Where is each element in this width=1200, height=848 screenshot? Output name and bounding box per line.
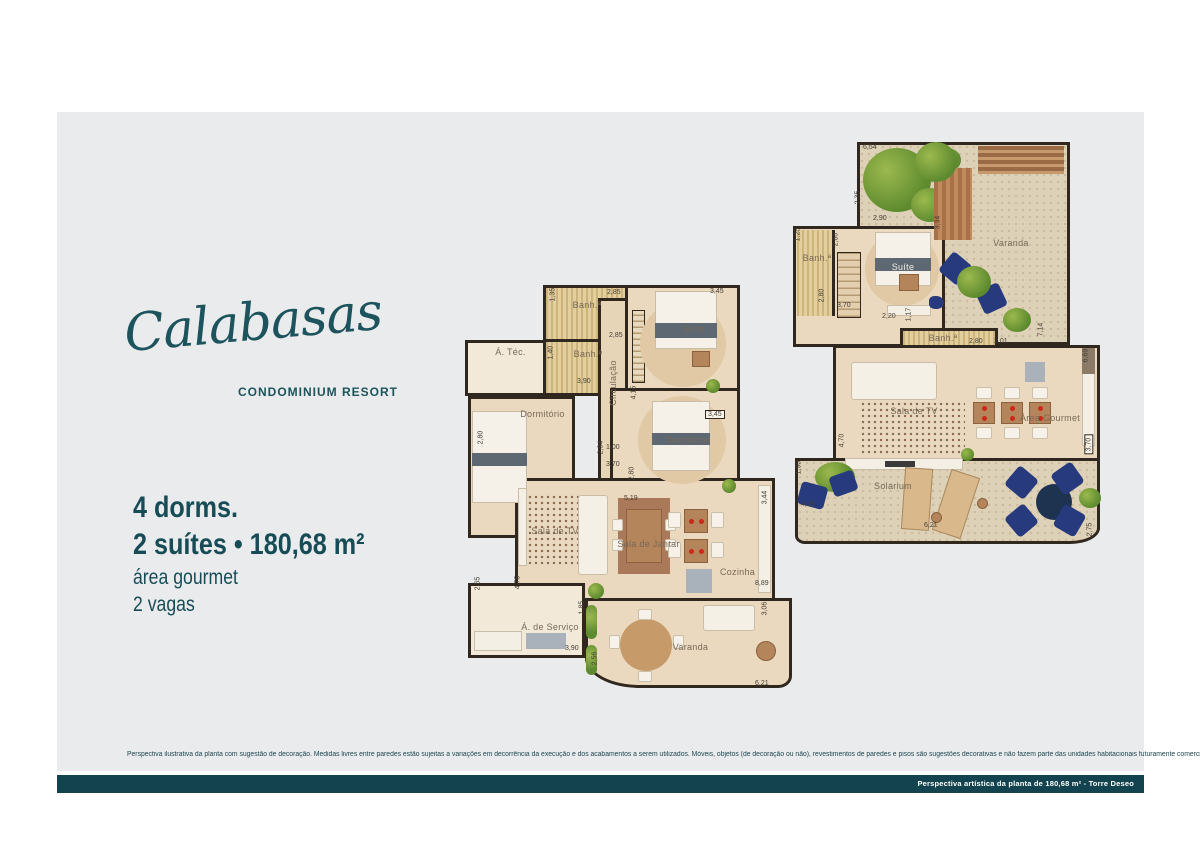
dimension-label: 1,00 — [606, 444, 620, 451]
dimension-label: 2,80 — [818, 289, 825, 303]
dimension-label: 2,80 — [477, 431, 484, 445]
sofa-icon — [851, 362, 937, 400]
dimension-label: 3,70 — [606, 461, 620, 468]
chair-icon — [638, 609, 652, 620]
chair-icon — [899, 274, 919, 291]
dimension-label: 1,35 — [549, 288, 556, 302]
dimension-label: 2,01 — [994, 338, 1008, 345]
page: Calabasas CONDOMINIUM RESORT 4 dorms. 2 … — [0, 0, 1200, 848]
dimension-label: 4,15 — [630, 386, 637, 400]
dimension-label: 1,40 — [547, 346, 554, 360]
dimension-label: 2,80 — [628, 467, 635, 481]
side-table-icon — [977, 498, 988, 509]
chair-icon — [1032, 427, 1048, 439]
dimension-label: 2,20 — [882, 313, 896, 320]
gourmet-table-icon — [973, 402, 995, 424]
chair-icon — [692, 351, 710, 367]
chair-icon — [1004, 427, 1020, 439]
room-label: Sala de TV — [524, 526, 586, 536]
kitchen-table-icon — [684, 509, 708, 533]
room-bath-upper1 — [797, 230, 835, 316]
kitchen-mat-icon — [686, 569, 712, 593]
dimension-label: 3,34 — [934, 216, 941, 230]
dimension-label: 3,06 — [761, 602, 768, 616]
room-label: Banh.ª — [797, 253, 837, 263]
chair-icon — [668, 512, 681, 528]
room-label: Cozinha — [715, 567, 760, 577]
dimension-label: 4,75 — [514, 576, 521, 590]
chair-icon — [711, 542, 724, 558]
spec-dorms: 4 dorms. — [133, 491, 238, 525]
bed-icon — [655, 291, 717, 349]
chair-icon — [1004, 387, 1020, 399]
dimension-label: 3,45 — [705, 410, 725, 419]
dimension-label: 2,56 — [591, 652, 598, 666]
dimension-label: 2,35 — [854, 191, 861, 205]
dimension-label: 1,25 — [794, 228, 801, 242]
shrub-icon — [1003, 308, 1031, 332]
dimension-label: 2,80 — [969, 338, 983, 345]
bed-runner-icon — [472, 453, 527, 466]
shrub-icon — [1079, 488, 1101, 508]
dimension-label: 2,94 — [597, 441, 604, 455]
room-label: Sala de TV — [883, 406, 945, 416]
room-label: Dormitório — [656, 435, 721, 445]
tv-icon — [885, 461, 915, 467]
dimension-label: 3,90 — [565, 645, 579, 652]
room-label: Varanda — [663, 642, 718, 652]
dimension-label: 2,90 — [873, 215, 887, 222]
plant-icon — [588, 583, 604, 599]
room-label: Á. Téc. — [488, 347, 533, 357]
dining-table-icon — [626, 509, 662, 563]
dimension-label: 1,85 — [578, 601, 585, 615]
dimension-label: 1,17 — [905, 308, 912, 322]
palm-icon — [915, 142, 957, 182]
plant-icon — [722, 479, 736, 493]
plant-icon — [706, 379, 720, 393]
chair-icon — [1032, 387, 1048, 399]
dimension-label: 1,90 — [795, 461, 802, 475]
dimension-label: 3,70 — [837, 302, 851, 309]
room-label: Banh.ª — [923, 333, 963, 343]
spec-suites-area: 2 suítes • 180,68 m² — [133, 528, 365, 562]
floorplan-main: Banh.ª Banh.ª Á. Téc. Suíte Dormitório C… — [460, 283, 795, 695]
room-label: Área Gourmet — [1015, 413, 1085, 423]
dimension-label: 3,44 — [761, 491, 768, 505]
room-label: Suíte — [883, 262, 923, 272]
dimension-label: 5,19 — [624, 495, 638, 502]
side-table-icon — [756, 641, 776, 661]
dimension-label: 7,14 — [1037, 323, 1044, 337]
dimension-label: 3,70 — [1084, 435, 1093, 455]
chair-icon — [711, 512, 724, 528]
chair-icon — [638, 671, 652, 682]
room-label: Sala de Jantar — [606, 539, 691, 549]
shrub-icon — [957, 266, 991, 298]
pergola-icon — [978, 146, 1064, 174]
disclaimer-text: Perspectiva ilustrativa da planta com su… — [127, 751, 1107, 758]
dimension-label: 8,89 — [755, 580, 769, 587]
laundry-counter-icon — [526, 633, 566, 649]
spec-vagas: 2 vagas — [133, 593, 195, 617]
chair-icon — [976, 387, 992, 399]
room-label: Á. de Serviço — [515, 622, 585, 632]
balcony-sofa-icon — [703, 605, 755, 631]
footer-caption-bar: Perspectiva artística da planta de 180,6… — [57, 775, 1144, 793]
pouf-icon — [929, 296, 944, 309]
dimension-label: 4,09 — [801, 501, 815, 508]
dimension-label: 6,21 — [755, 680, 769, 687]
planter-icon — [586, 605, 597, 639]
laundry-machines-icon — [474, 631, 522, 651]
room-label: Dormitório — [510, 409, 575, 419]
dimension-label: 6,21 — [924, 522, 938, 529]
dimension-label: 2,75 — [1086, 523, 1093, 537]
dimension-label: 3,90 — [577, 378, 591, 385]
room-label: Circulação — [608, 353, 618, 413]
dimension-label: 2,85 — [607, 289, 621, 296]
plant-icon — [961, 448, 974, 461]
floorplan-upper: Varanda Banh.ª Suíte Banh.ª Sala de TV Á… — [793, 140, 1105, 552]
chair-icon — [609, 635, 620, 649]
brand-tagline: CONDOMINIUM RESORT — [238, 385, 398, 399]
spec-gourmet: área gourmet — [133, 566, 238, 590]
room-label: Suíte — [671, 324, 716, 334]
room-label: Varanda — [981, 238, 1041, 248]
chair-icon — [612, 519, 623, 531]
dimension-label: 2,80 — [832, 233, 839, 247]
dimension-label: 2,85 — [609, 332, 623, 339]
room-label: Banh.ª — [567, 300, 607, 310]
dimension-label: 2,65 — [474, 577, 481, 591]
room-label: Solarium — [863, 481, 923, 491]
dimension-label: 4,70 — [838, 434, 845, 448]
dimension-label: 3,45 — [710, 288, 724, 295]
dimension-label: 6,54 — [863, 144, 877, 151]
chair-icon — [976, 427, 992, 439]
dimension-label: 6,69 — [1082, 349, 1089, 363]
mat-icon — [1025, 362, 1045, 382]
room-label: Banh.ª — [568, 349, 608, 359]
